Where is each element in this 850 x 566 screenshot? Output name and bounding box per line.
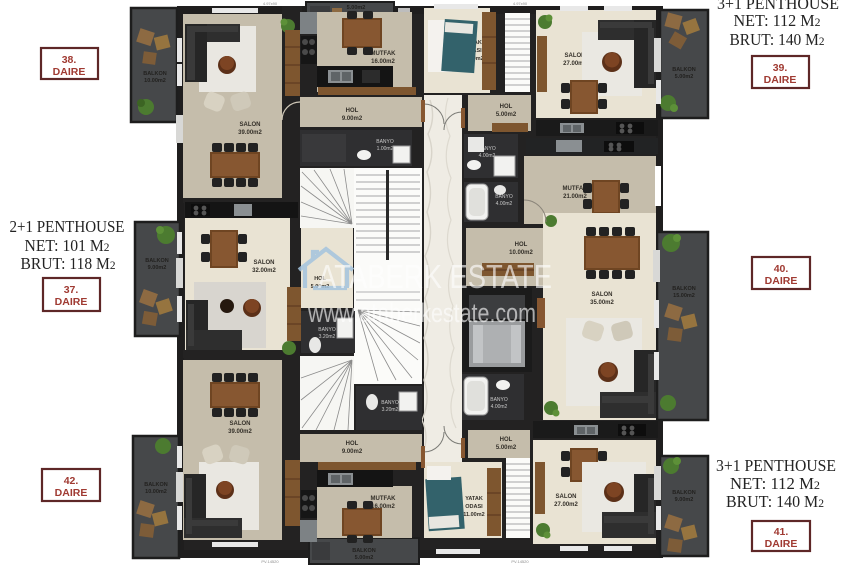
svg-text:DAIRE: DAIRE xyxy=(764,74,797,86)
svg-text:27.00m2: 27.00m2 xyxy=(554,502,578,508)
svg-text:SALON: SALON xyxy=(230,421,251,427)
svg-text:NET: 101 M2: NET: 101 M2 xyxy=(25,236,110,255)
svg-text:DAIRE: DAIRE xyxy=(53,66,86,78)
svg-text:PV.14520: PV.14520 xyxy=(261,559,279,564)
svg-text:HOL: HOL xyxy=(346,441,359,447)
svg-text:21.00m2: 21.00m2 xyxy=(563,194,587,200)
svg-text:SALON: SALON xyxy=(240,122,261,128)
svg-text:42.: 42. xyxy=(64,475,79,487)
svg-text:10.00m2: 10.00m2 xyxy=(145,489,167,495)
svg-text:11.00m2: 11.00m2 xyxy=(463,512,484,518)
svg-text:9.00m2: 9.00m2 xyxy=(148,265,167,271)
svg-text:4.97x90: 4.97x90 xyxy=(513,1,528,6)
svg-text:DAIRE: DAIRE xyxy=(55,487,88,499)
svg-text:SALON: SALON xyxy=(556,494,577,500)
svg-text:NET: 112 M2: NET: 112 M2 xyxy=(734,11,821,30)
svg-text:39.: 39. xyxy=(773,62,788,74)
svg-text:HOL: HOL xyxy=(515,242,528,248)
svg-text:ATABERK ESTATE: ATABERK ESTATE xyxy=(318,258,552,295)
svg-text:16.00m2: 16.00m2 xyxy=(371,59,395,65)
svg-text:BALKON: BALKON xyxy=(352,548,376,554)
svg-text:BRUT: 140 M2: BRUT: 140 M2 xyxy=(726,492,824,511)
svg-text:4.00m2: 4.00m2 xyxy=(491,404,508,410)
svg-text:2+1 PENTHOUSE: 2+1 PENTHOUSE xyxy=(10,217,125,236)
svg-text:YATAK: YATAK xyxy=(465,496,483,502)
svg-text:9.00m2: 9.00m2 xyxy=(342,116,363,122)
svg-text:5.00m2: 5.00m2 xyxy=(355,555,374,561)
svg-text:NET: 112 M2: NET: 112 M2 xyxy=(730,474,820,493)
svg-text:BALKON: BALKON xyxy=(145,258,169,264)
svg-text:9.00m2: 9.00m2 xyxy=(342,449,363,455)
svg-text:BANYO: BANYO xyxy=(381,400,399,406)
svg-text:15.00m2: 15.00m2 xyxy=(673,293,695,299)
svg-text:3.20m2: 3.20m2 xyxy=(319,334,336,340)
svg-text:35.00m2: 35.00m2 xyxy=(590,300,614,306)
svg-text:1.00m2: 1.00m2 xyxy=(377,146,394,152)
svg-text:3.20m2: 3.20m2 xyxy=(382,407,399,413)
svg-text:37.: 37. xyxy=(64,284,79,296)
svg-text:BANYO: BANYO xyxy=(376,139,394,145)
svg-text:38.: 38. xyxy=(62,54,77,66)
svg-text:PV.14520: PV.14520 xyxy=(511,559,529,564)
svg-text:5.00m2: 5.00m2 xyxy=(347,5,366,11)
svg-text:HOL: HOL xyxy=(346,108,359,114)
svg-text:HOL: HOL xyxy=(500,104,513,110)
svg-text:32.00m2: 32.00m2 xyxy=(252,268,276,274)
svg-text:BALKON: BALKON xyxy=(144,482,168,488)
svg-text:10.00m2: 10.00m2 xyxy=(144,78,166,84)
svg-text:MUTFAK: MUTFAK xyxy=(371,496,397,502)
svg-text:BALKON: BALKON xyxy=(672,286,696,292)
svg-text:4.00m2: 4.00m2 xyxy=(496,201,513,207)
svg-text:BALKON: BALKON xyxy=(672,67,696,73)
svg-text:BANYO: BANYO xyxy=(495,194,513,200)
svg-text:4.97x90: 4.97x90 xyxy=(263,1,278,6)
svg-text:10.00m2: 10.00m2 xyxy=(509,250,533,256)
svg-text:BRUT: 118 M2: BRUT: 118 M2 xyxy=(21,254,116,273)
svg-text:BALKON: BALKON xyxy=(672,490,696,496)
svg-text:BRUT: 140 M2: BRUT: 140 M2 xyxy=(730,30,825,49)
svg-text:DAIRE: DAIRE xyxy=(55,296,88,308)
svg-text:HOL: HOL xyxy=(500,437,513,443)
svg-text:www.ataberkestate.com: www.ataberkestate.com xyxy=(307,298,536,328)
svg-text:5.00m2: 5.00m2 xyxy=(496,112,517,118)
svg-text:SALON: SALON xyxy=(592,292,613,298)
svg-text:41.: 41. xyxy=(774,526,789,538)
svg-text:BALKON: BALKON xyxy=(143,71,167,77)
svg-text:5.00m2: 5.00m2 xyxy=(496,445,517,451)
svg-text:SALON: SALON xyxy=(254,260,275,266)
svg-text:4.00m2: 4.00m2 xyxy=(479,153,496,159)
svg-text:DAIRE: DAIRE xyxy=(765,275,798,287)
svg-text:39.00m2: 39.00m2 xyxy=(238,130,262,136)
svg-text:39.00m2: 39.00m2 xyxy=(228,429,252,435)
svg-text:3+1 PENTHOUSE: 3+1 PENTHOUSE xyxy=(716,456,836,475)
svg-text:5.00m2: 5.00m2 xyxy=(675,74,694,80)
svg-text:9.00m2: 9.00m2 xyxy=(675,497,694,503)
svg-text:ODASI: ODASI xyxy=(465,504,483,510)
svg-text:40.: 40. xyxy=(774,263,789,275)
svg-text:DAIRE: DAIRE xyxy=(765,538,798,550)
svg-text:MUTFAK: MUTFAK xyxy=(371,51,397,57)
svg-text:BANYO: BANYO xyxy=(490,397,508,403)
